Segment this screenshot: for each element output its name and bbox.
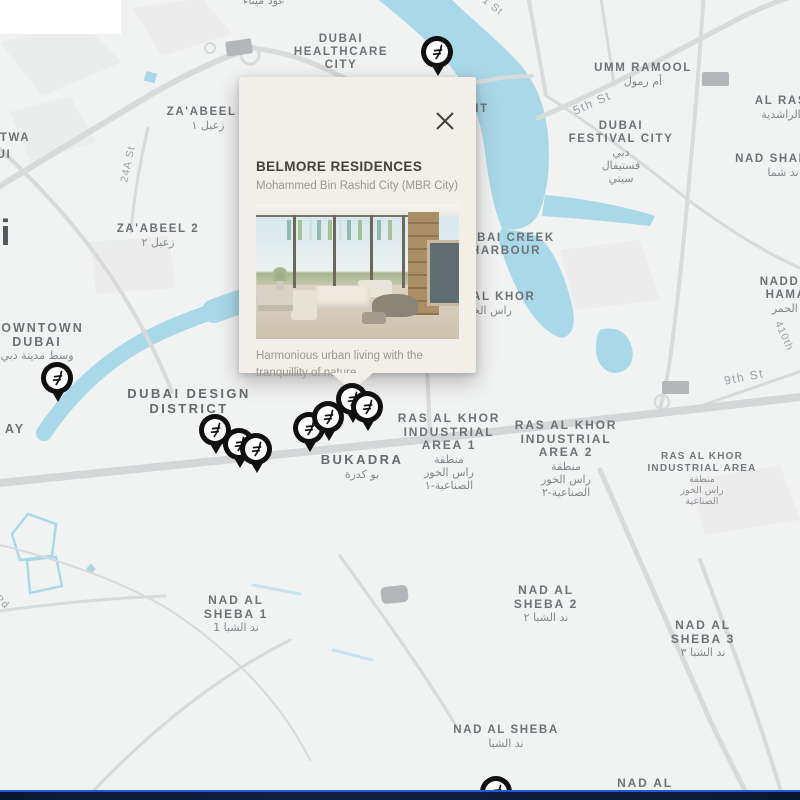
brand-monogram-icon [50,370,66,386]
map-pin[interactable] [41,362,75,408]
map-pin[interactable] [240,433,274,479]
map-pin[interactable] [421,36,455,82]
map-canvas[interactable]: عود ميثاء01 StDUBAIHEALTHCARECITYUMM RAM… [0,0,800,800]
bottom-bar [0,790,800,800]
brand-monogram-icon [208,422,224,438]
brand-monogram-icon [321,409,337,425]
brand-monogram-icon [249,441,265,457]
brand-monogram-icon [430,44,446,60]
brand-monogram-icon [360,399,376,415]
map-pin[interactable] [351,391,385,437]
map-pins-layer [0,0,800,800]
